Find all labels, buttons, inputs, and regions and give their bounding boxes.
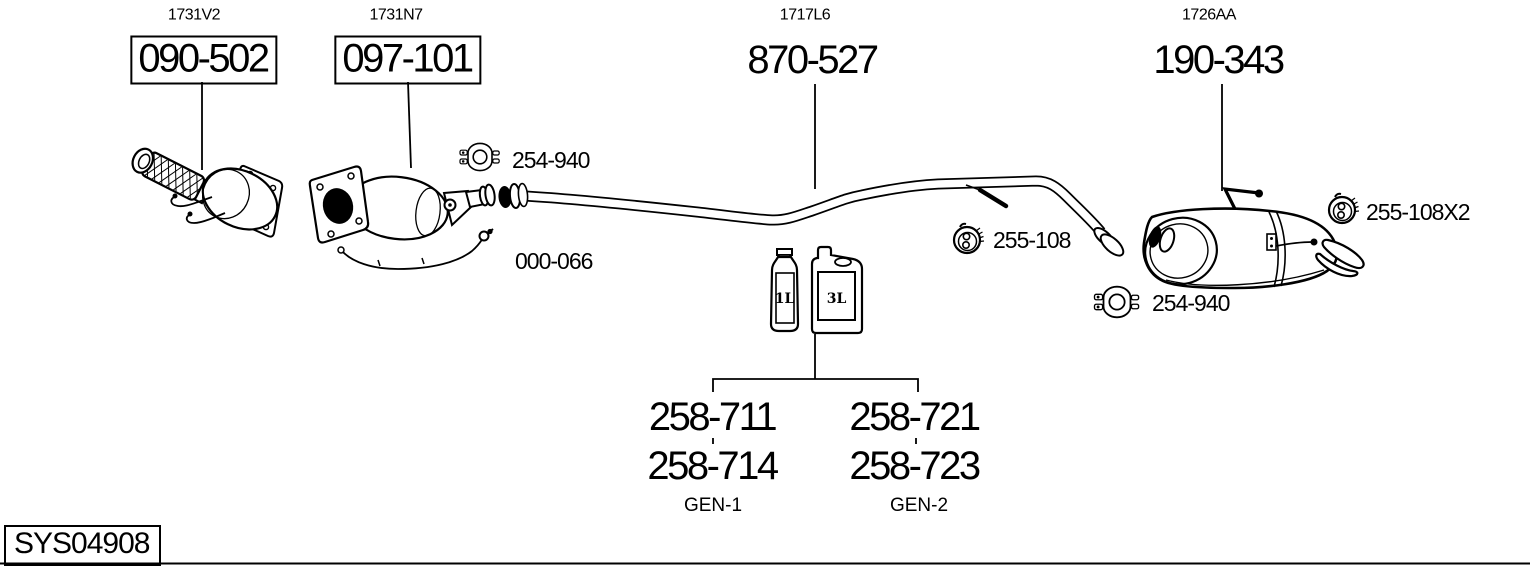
particulate-filter-drawing: [310, 167, 496, 245]
leader-lines: [0, 82, 1530, 564]
rear-hanger-part-number[interactable]: 255-108X2: [1366, 200, 1470, 224]
gen2-part-number-2[interactable]: 258-723: [849, 445, 978, 487]
rubber-hanger-icon: [954, 224, 984, 253]
gen1-part-number-2[interactable]: 258-714: [647, 445, 776, 487]
generation-2-label: GEN-2: [890, 496, 948, 516]
rubber-hanger-icon: [1329, 194, 1359, 223]
center-hanger-part-number[interactable]: 255-108: [993, 228, 1070, 252]
exhaust-system-diagram: 1L 3L 1731V2 1731N7 1717L6 1726AA 090-50…: [0, 0, 1530, 566]
additive-bottle-1l: 1L: [771, 249, 798, 331]
particulate-filter-ref: 1731N7: [369, 8, 422, 25]
bottle-volume-label: 1L: [775, 291, 795, 307]
catalytic-converter-part-number[interactable]: 090-502: [130, 36, 277, 85]
jug-volume-label: 3L: [827, 291, 847, 307]
additive-jug-3l: 3L: [812, 247, 862, 333]
clamp-icon: [460, 143, 499, 170]
front-clamp-part-number[interactable]: 254-940: [512, 148, 589, 172]
center-pipe-ref: 1717L6: [780, 8, 830, 25]
rear-clamp-part-number[interactable]: 254-940: [1152, 291, 1229, 315]
clamp-icon: [1095, 287, 1139, 318]
catalytic-converter-drawing: [128, 145, 287, 241]
generation-1-label: GEN-1: [684, 496, 742, 516]
gen1-part-number-1[interactable]: 258-711: [649, 396, 775, 438]
particulate-filter-part-number[interactable]: 097-101: [334, 36, 481, 85]
system-code-badge: SYS04908: [4, 525, 161, 566]
gen2-part-number-1[interactable]: 258-721: [849, 396, 978, 438]
rear-muffler-part-number[interactable]: 190-343: [1153, 39, 1282, 81]
sensor-harness-part-number[interactable]: 000-066: [515, 249, 592, 273]
rear-muffler-ref: 1726AA: [1182, 8, 1236, 25]
catalytic-converter-ref: 1731V2: [168, 8, 220, 25]
center-pipe-part-number[interactable]: 870-527: [747, 39, 876, 81]
